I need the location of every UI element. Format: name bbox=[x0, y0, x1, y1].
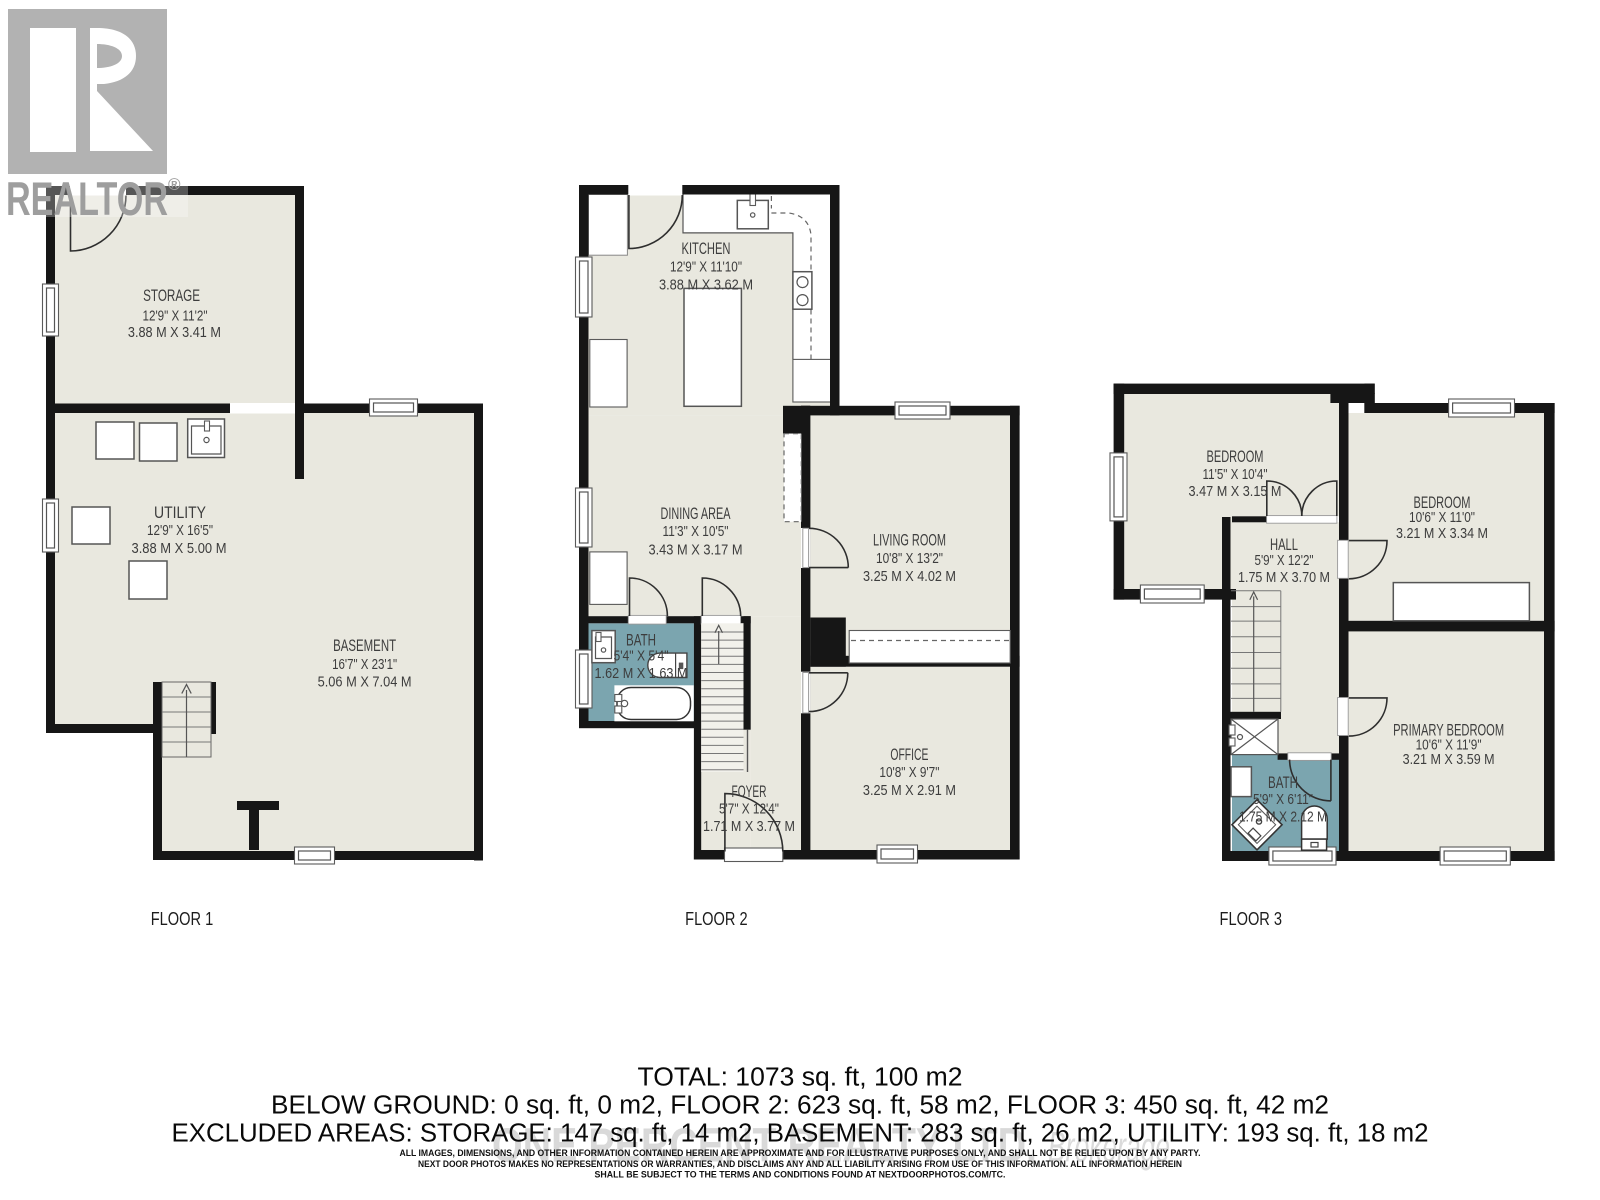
svg-text:3.25 M X 2.91 M: 3.25 M X 2.91 M bbox=[863, 783, 956, 799]
svg-text:BEDROOM: BEDROOM bbox=[1207, 447, 1264, 466]
svg-text:DINING AREA: DINING AREA bbox=[661, 504, 731, 523]
svg-text:12'9" X 11'10": 12'9" X 11'10" bbox=[670, 260, 742, 276]
svg-text:BELOW GROUND: 0 sq. ft, 0 m2,: BELOW GROUND: 0 sq. ft, 0 m2, FLOOR 2: 6… bbox=[271, 1092, 1329, 1120]
svg-text:16'7" X 23'1": 16'7" X 23'1" bbox=[332, 657, 397, 673]
svg-text:5'4" X 5'4": 5'4" X 5'4" bbox=[614, 649, 669, 665]
svg-text:1.62 M X 1.63 M: 1.62 M X 1.63 M bbox=[595, 666, 688, 682]
svg-text:3.88 M X 3.41 M: 3.88 M X 3.41 M bbox=[128, 325, 221, 341]
svg-text:3.21 M X 3.59 M: 3.21 M X 3.59 M bbox=[1403, 752, 1495, 768]
svg-text:10'8" X 9'7": 10'8" X 9'7" bbox=[879, 765, 939, 781]
svg-text:HALL: HALL bbox=[1270, 535, 1298, 554]
svg-text:STORAGE: STORAGE bbox=[143, 286, 200, 305]
svg-text:FLOOR 1: FLOOR 1 bbox=[151, 909, 214, 929]
svg-text:10'6" X 11'0": 10'6" X 11'0" bbox=[1409, 510, 1475, 526]
svg-text:EXCLUDED AREAS: STORAGE: 147 s: EXCLUDED AREAS: STORAGE: 147 sq. ft, 14 … bbox=[172, 1120, 1429, 1148]
svg-text:5'9" X 12'2": 5'9" X 12'2" bbox=[1255, 553, 1314, 569]
svg-text:3.21 M X 3.34 M: 3.21 M X 3.34 M bbox=[1396, 526, 1488, 542]
svg-text:FOYER: FOYER bbox=[732, 782, 767, 801]
svg-text:BATH: BATH bbox=[1268, 773, 1298, 792]
svg-text:1.71 M X 3.77 M: 1.71 M X 3.77 M bbox=[703, 819, 795, 835]
svg-text:1.75 M X 3.70 M: 1.75 M X 3.70 M bbox=[1238, 570, 1330, 586]
svg-text:LIVING ROOM: LIVING ROOM bbox=[873, 531, 946, 550]
svg-text:3.25 M X 4.02 M: 3.25 M X 4.02 M bbox=[863, 569, 956, 585]
svg-text:11'3" X 10'5": 11'3" X 10'5" bbox=[663, 524, 729, 540]
svg-text:10'6" X 11'9": 10'6" X 11'9" bbox=[1416, 737, 1482, 753]
svg-text:NEXT DOOR PHOTOS MAKES NO REPR: NEXT DOOR PHOTOS MAKES NO REPRESENTATION… bbox=[418, 1159, 1182, 1170]
svg-text:5'9" X 6'11": 5'9" X 6'11" bbox=[1253, 792, 1313, 808]
svg-text:3.88 M X 3.62 M: 3.88 M X 3.62 M bbox=[659, 278, 753, 294]
svg-text:FLOOR 2: FLOOR 2 bbox=[685, 909, 748, 929]
svg-text:3.43 M X 3.17 M: 3.43 M X 3.17 M bbox=[649, 542, 743, 558]
svg-text:3.47 M X 3.15 M: 3.47 M X 3.15 M bbox=[1189, 484, 1282, 500]
svg-text:®: ® bbox=[168, 175, 181, 194]
svg-text:REALTOR: REALTOR bbox=[6, 172, 168, 225]
svg-text:ALL IMAGES, DIMENSIONS, AND OT: ALL IMAGES, DIMENSIONS, AND OTHER INFORM… bbox=[400, 1148, 1201, 1159]
svg-text:5'7" X 12'4": 5'7" X 12'4" bbox=[719, 802, 779, 818]
svg-text:UTILITY: UTILITY bbox=[154, 503, 206, 522]
svg-text:12'9" X 16'5": 12'9" X 16'5" bbox=[147, 523, 213, 539]
svg-text:OFFICE: OFFICE bbox=[890, 745, 928, 764]
svg-text:SHALL BE SUBJECT TO THE TERMS: SHALL BE SUBJECT TO THE TERMS AND CONDIT… bbox=[595, 1170, 1006, 1181]
svg-text:3.88 M X 5.00 M: 3.88 M X 5.00 M bbox=[132, 541, 227, 557]
svg-text:1.75 M X 2.12 M: 1.75 M X 2.12 M bbox=[1239, 810, 1327, 826]
svg-text:10'8" X 13'2": 10'8" X 13'2" bbox=[876, 551, 943, 567]
svg-text:FLOOR 3: FLOOR 3 bbox=[1220, 909, 1283, 929]
svg-text:KITCHEN: KITCHEN bbox=[682, 239, 731, 258]
svg-text:5.06 M X 7.04 M: 5.06 M X 7.04 M bbox=[318, 675, 412, 691]
svg-text:BATH: BATH bbox=[626, 631, 656, 650]
svg-text:TOTAL: 1073 sq. ft, 100 m2: TOTAL: 1073 sq. ft, 100 m2 bbox=[638, 1064, 963, 1092]
svg-text:BASEMENT: BASEMENT bbox=[333, 636, 396, 655]
svg-text:12'9" X 11'2": 12'9" X 11'2" bbox=[143, 309, 208, 325]
svg-text:11'5" X 10'4": 11'5" X 10'4" bbox=[1203, 467, 1268, 483]
